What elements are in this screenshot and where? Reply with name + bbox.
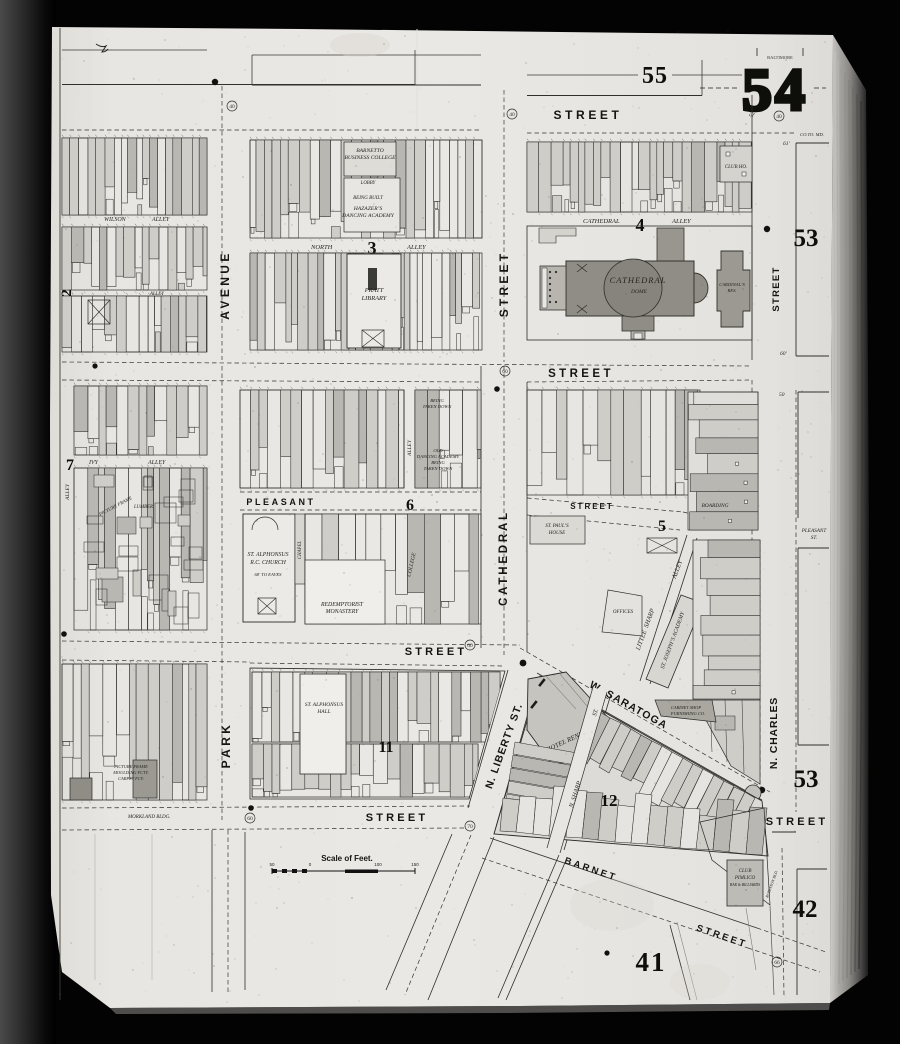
svg-text:TAKEN DOWN: TAKEN DOWN xyxy=(424,466,454,471)
svg-text:42: 42 xyxy=(793,896,818,923)
svg-text:ALLEY: ALLEY xyxy=(406,244,427,251)
svg-text:CABINET SHOP: CABINET SHOP xyxy=(671,705,701,710)
svg-text:AVENUE: AVENUE xyxy=(218,250,232,320)
svg-text:STREET: STREET xyxy=(570,502,614,511)
svg-text:STREET: STREET xyxy=(405,646,468,658)
svg-text:61′: 61′ xyxy=(783,141,791,147)
svg-text:FURNISHING CO.: FURNISHING CO. xyxy=(670,711,705,716)
svg-text:ST. ALPHONSUS: ST. ALPHONSUS xyxy=(305,702,343,708)
svg-text:5: 5 xyxy=(658,518,666,535)
svg-text:PRATT: PRATT xyxy=(364,287,384,294)
svg-text:7: 7 xyxy=(66,457,74,474)
svg-text:MOULDING FCTY.: MOULDING FCTY. xyxy=(112,770,148,775)
svg-text:OFFICES: OFFICES xyxy=(613,610,634,615)
svg-text:N. CHARLES: N. CHARLES xyxy=(768,697,780,769)
svg-text:ALLEY: ALLEY xyxy=(671,218,692,225)
svg-text:11: 11 xyxy=(378,739,393,756)
svg-text:40: 40 xyxy=(776,114,782,120)
svg-text:TAKEN DOWN: TAKEN DOWN xyxy=(423,404,453,409)
svg-text:55: 55 xyxy=(642,63,668,89)
svg-text:HAZAZER’S: HAZAZER’S xyxy=(353,206,383,212)
svg-text:STREET: STREET xyxy=(554,108,623,122)
svg-text:66: 66 xyxy=(774,960,780,966)
svg-text:BALTIMORE: BALTIMORE xyxy=(767,55,793,60)
svg-text:40: 40 xyxy=(509,112,515,118)
svg-text:6: 6 xyxy=(406,497,414,514)
svg-text:DANCING ACADEMY: DANCING ACADEMY xyxy=(341,213,395,219)
svg-text:PLEASANT: PLEASANT xyxy=(246,497,315,507)
svg-text:REDEMPTORIST: REDEMPTORIST xyxy=(320,602,364,608)
svg-text:LOBBY: LOBBY xyxy=(360,181,377,186)
svg-text:BEING BUILT: BEING BUILT xyxy=(353,196,384,201)
svg-text:PICTURE FRAME: PICTURE FRAME xyxy=(113,764,148,769)
svg-text:BOARDING: BOARDING xyxy=(702,503,729,509)
svg-text:ST. PAUL’S: ST. PAUL’S xyxy=(545,524,569,529)
svg-text:CHAPEL: CHAPEL xyxy=(298,541,303,559)
svg-text:100: 100 xyxy=(374,862,382,867)
svg-text:4: 4 xyxy=(636,215,645,235)
svg-text:HOUSE: HOUSE xyxy=(548,531,565,536)
svg-text:60: 60 xyxy=(247,816,253,822)
svg-text:MORKLAND BLDG.: MORKLAND BLDG. xyxy=(127,815,171,820)
svg-text:DANCING ACADEMY: DANCING ACADEMY xyxy=(416,454,460,459)
svg-text:Scale of Feet.: Scale of Feet. xyxy=(321,854,373,863)
svg-text:STREET: STREET xyxy=(766,816,829,828)
svg-text:12: 12 xyxy=(601,791,618,810)
svg-text:IVY: IVY xyxy=(88,460,99,466)
svg-text:STREET: STREET xyxy=(771,266,782,311)
svg-text:50: 50 xyxy=(779,392,785,398)
svg-text:CATHEDRAL: CATHEDRAL xyxy=(610,275,667,285)
svg-text:DOME: DOME xyxy=(630,289,648,295)
svg-text:R.C. CHURCH: R.C. CHURCH xyxy=(249,560,286,566)
svg-text:53: 53 xyxy=(794,766,819,793)
svg-text:BUSINESS COLLEGE: BUSINESS COLLEGE xyxy=(344,155,396,161)
svg-text:53: 53 xyxy=(794,225,819,252)
svg-text:60: 60 xyxy=(502,369,508,375)
svg-text:40: 40 xyxy=(229,104,235,110)
svg-text:PIMLICO: PIMLICO xyxy=(734,876,756,881)
svg-text:NORTH: NORTH xyxy=(310,244,333,251)
svg-text:ST.: ST. xyxy=(811,535,818,541)
svg-text:50: 50 xyxy=(269,862,275,867)
svg-text:MONASTERY: MONASTERY xyxy=(325,609,360,615)
svg-text:ALLEY: ALLEY xyxy=(65,483,71,501)
svg-text:70: 70 xyxy=(467,824,473,830)
svg-text:CLUB HO.: CLUB HO. xyxy=(725,165,748,170)
svg-text:LUMBER: LUMBER xyxy=(133,505,153,510)
svg-text:CLUB: CLUB xyxy=(739,869,752,874)
svg-text:ALLEY: ALLEY xyxy=(407,439,413,457)
svg-text:68′ TO EAVES: 68′ TO EAVES xyxy=(255,572,283,577)
svg-text:CATHEDRAL: CATHEDRAL xyxy=(498,510,510,606)
svg-text:60′: 60′ xyxy=(780,351,788,357)
svg-text:BAR & BILLIARDS: BAR & BILLIARDS xyxy=(730,883,760,887)
svg-text:2: 2 xyxy=(59,289,75,297)
svg-text:PLEASANT: PLEASANT xyxy=(801,528,828,534)
svg-text:STREET: STREET xyxy=(497,251,511,318)
svg-text:CATHEDRAL: CATHEDRAL xyxy=(583,218,620,225)
svg-text:CARPET FCY.: CARPET FCY. xyxy=(118,776,144,781)
svg-text:STREET: STREET xyxy=(366,812,429,824)
svg-text:ALLEY: ALLEY xyxy=(147,460,166,466)
svg-text:PARK: PARK xyxy=(219,722,233,769)
svg-text:RES.: RES. xyxy=(726,288,736,293)
svg-text:LIBRARY: LIBRARY xyxy=(361,295,388,302)
svg-text:ST. ALPHONSUS: ST. ALPHONSUS xyxy=(247,552,288,558)
svg-text:CARDINAL’S: CARDINAL’S xyxy=(719,282,745,287)
svg-text:OLD: OLD xyxy=(433,448,443,453)
svg-text:BEING: BEING xyxy=(430,398,444,403)
svg-text:ALLEY: ALLEY xyxy=(151,217,170,223)
svg-text:STREET: STREET xyxy=(548,368,614,380)
svg-text:WILSON: WILSON xyxy=(104,217,127,223)
svg-text:CO.TO. MD.: CO.TO. MD. xyxy=(800,132,824,137)
svg-text:BEING: BEING xyxy=(431,460,445,465)
svg-text:BARNETTO: BARNETTO xyxy=(356,148,384,154)
svg-text:150: 150 xyxy=(411,862,419,867)
svg-text:HALL: HALL xyxy=(316,709,330,715)
